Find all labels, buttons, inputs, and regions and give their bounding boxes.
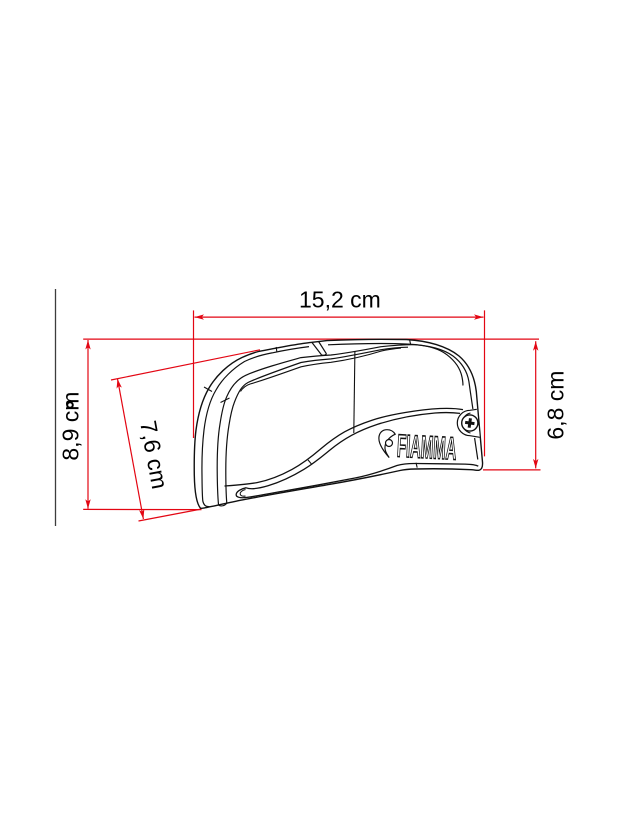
svg-text:FIAMMA: FIAMMA bbox=[396, 428, 457, 467]
svg-text:6,8 cm: 6,8 cm bbox=[543, 371, 569, 440]
svg-text:15,2 cm: 15,2 cm bbox=[299, 287, 381, 313]
svg-text:7,6 cm: 7,6 cm bbox=[135, 418, 173, 491]
